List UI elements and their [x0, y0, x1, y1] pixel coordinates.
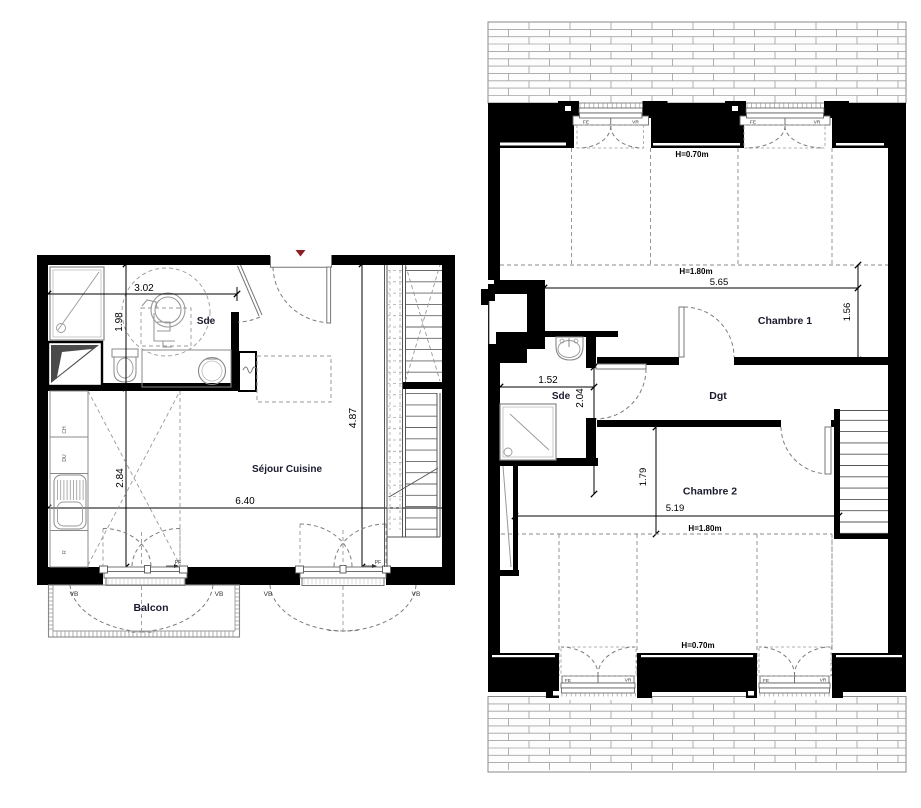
svg-text:DU: DU: [62, 454, 68, 462]
svg-text:Sde: Sde: [552, 391, 571, 402]
svg-text:VR: VR: [632, 120, 639, 126]
svg-text:2.04: 2.04: [575, 388, 586, 408]
svg-text:VR: VR: [814, 120, 821, 126]
svg-text:H=0.70m: H=0.70m: [681, 641, 714, 650]
svg-text:VR: VR: [820, 678, 827, 684]
svg-text:2.84: 2.84: [115, 468, 126, 488]
svg-text:Sde: Sde: [197, 316, 216, 327]
svg-text:FE: FE: [763, 678, 769, 684]
svg-text:PF: PF: [375, 560, 381, 566]
svg-text:1.56: 1.56: [842, 303, 853, 322]
svg-text:1.98: 1.98: [114, 312, 125, 332]
svg-text:1.79: 1.79: [638, 468, 649, 487]
svg-text:1.52: 1.52: [538, 375, 558, 386]
svg-text:H=1.80m: H=1.80m: [688, 524, 721, 533]
svg-text:VR: VR: [625, 678, 632, 684]
svg-text:Chambre 1: Chambre 1: [758, 315, 812, 327]
svg-text:VB: VB: [70, 591, 79, 598]
svg-text:5.65: 5.65: [710, 277, 729, 288]
svg-text:FE: FE: [750, 120, 756, 126]
svg-text:Séjour Cuisine: Séjour Cuisine: [252, 464, 322, 475]
svg-text:VB: VB: [215, 591, 224, 598]
svg-text:FE: FE: [583, 120, 589, 126]
svg-text:CH: CH: [62, 426, 68, 434]
svg-text:VB: VB: [412, 591, 421, 598]
svg-text:H=0.70m: H=0.70m: [675, 150, 708, 159]
svg-text:6.40: 6.40: [235, 496, 255, 507]
svg-text:5.19: 5.19: [666, 503, 685, 514]
svg-text:Balcon: Balcon: [133, 602, 168, 614]
svg-text:Chambre 2: Chambre 2: [683, 486, 737, 498]
svg-text:FE: FE: [565, 678, 571, 684]
svg-text:Dgt: Dgt: [709, 390, 727, 402]
svg-text:3.02: 3.02: [134, 283, 154, 294]
svg-text:VB: VB: [264, 591, 273, 598]
svg-text:R: R: [62, 550, 68, 554]
svg-text:H=1.80m: H=1.80m: [679, 267, 712, 276]
svg-text:4.87: 4.87: [347, 408, 359, 429]
